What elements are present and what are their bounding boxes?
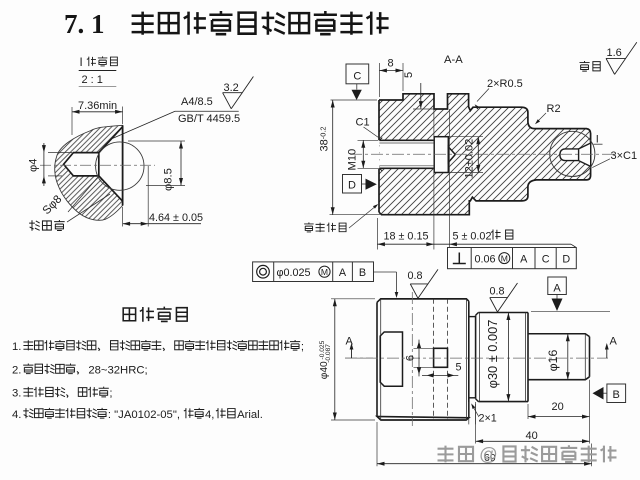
svg-text:φ16: φ16	[546, 350, 560, 372]
svg-text:A: A	[610, 336, 618, 348]
svg-text:6: 6	[405, 355, 417, 361]
svg-text:3.: 3.	[12, 388, 21, 400]
svg-text:A-A: A-A	[444, 54, 463, 66]
svg-text:5: 5	[456, 362, 462, 374]
svg-text:4,: 4,	[205, 409, 214, 421]
svg-text:M: M	[321, 267, 328, 277]
svg-text:1.: 1.	[12, 341, 21, 353]
svg-text:: "JA0102-05",: : "JA0102-05",	[108, 409, 180, 421]
svg-text:A: A	[339, 267, 347, 279]
svg-text:A: A	[346, 336, 354, 348]
svg-text:φ4: φ4	[28, 159, 40, 172]
svg-text:A: A	[520, 254, 528, 266]
svg-text:2×1: 2×1	[479, 413, 497, 425]
svg-text:2×R0.5: 2×R0.5	[487, 78, 523, 90]
svg-text:I: I	[596, 134, 599, 146]
svg-text:0.06: 0.06	[475, 254, 496, 266]
svg-text:φ0.025: φ0.025	[277, 267, 311, 279]
svg-text:0.8: 0.8	[408, 270, 423, 282]
svg-text:7.36min: 7.36min	[78, 100, 117, 112]
svg-text:8: 8	[388, 58, 394, 70]
svg-text:7. 1: 7. 1	[64, 9, 105, 39]
svg-text:2.: 2.	[12, 365, 21, 377]
svg-text:D: D	[562, 254, 570, 266]
svg-text:φ8.5: φ8.5	[163, 168, 175, 191]
svg-text:M10: M10	[347, 149, 359, 171]
svg-text:;: ;	[301, 341, 304, 353]
svg-text:A4/8.5: A4/8.5	[181, 96, 213, 108]
svg-text:18 ± 0.15: 18 ± 0.15	[384, 231, 429, 243]
svg-text:20: 20	[552, 401, 564, 413]
svg-text:0.8: 0.8	[490, 286, 505, 298]
svg-text:C: C	[542, 254, 550, 266]
svg-text:3×C1: 3×C1	[611, 150, 638, 162]
svg-text:I: I	[80, 57, 83, 69]
svg-text:4.64 ± 0.05: 4.64 ± 0.05	[149, 212, 203, 224]
svg-text:28~32HRC;: 28~32HRC;	[88, 365, 147, 377]
svg-text:@: @	[479, 444, 498, 465]
svg-text:1.6: 1.6	[607, 47, 622, 59]
svg-text:B: B	[359, 267, 366, 279]
svg-text:4.: 4.	[12, 409, 21, 421]
svg-text:A: A	[553, 283, 561, 295]
svg-text:;: ;	[109, 388, 112, 400]
svg-text:40: 40	[526, 430, 538, 442]
svg-text:5: 5	[403, 72, 415, 78]
svg-text:5 ± 0.02: 5 ± 0.02	[453, 231, 492, 243]
svg-text:2 : 1: 2 : 1	[82, 74, 103, 86]
svg-text:Arial.: Arial.	[237, 409, 263, 421]
svg-text:φ30 ± 0.007: φ30 ± 0.007	[485, 320, 500, 389]
svg-text:M: M	[501, 253, 508, 263]
svg-text:C1: C1	[356, 117, 370, 129]
svg-text:B: B	[613, 389, 620, 401]
svg-text:3.2: 3.2	[224, 82, 239, 94]
svg-text:C: C	[353, 71, 361, 83]
svg-text:R2: R2	[547, 103, 561, 115]
svg-text:D: D	[348, 180, 356, 192]
svg-text:GB/T 4459.5: GB/T 4459.5	[178, 113, 240, 125]
